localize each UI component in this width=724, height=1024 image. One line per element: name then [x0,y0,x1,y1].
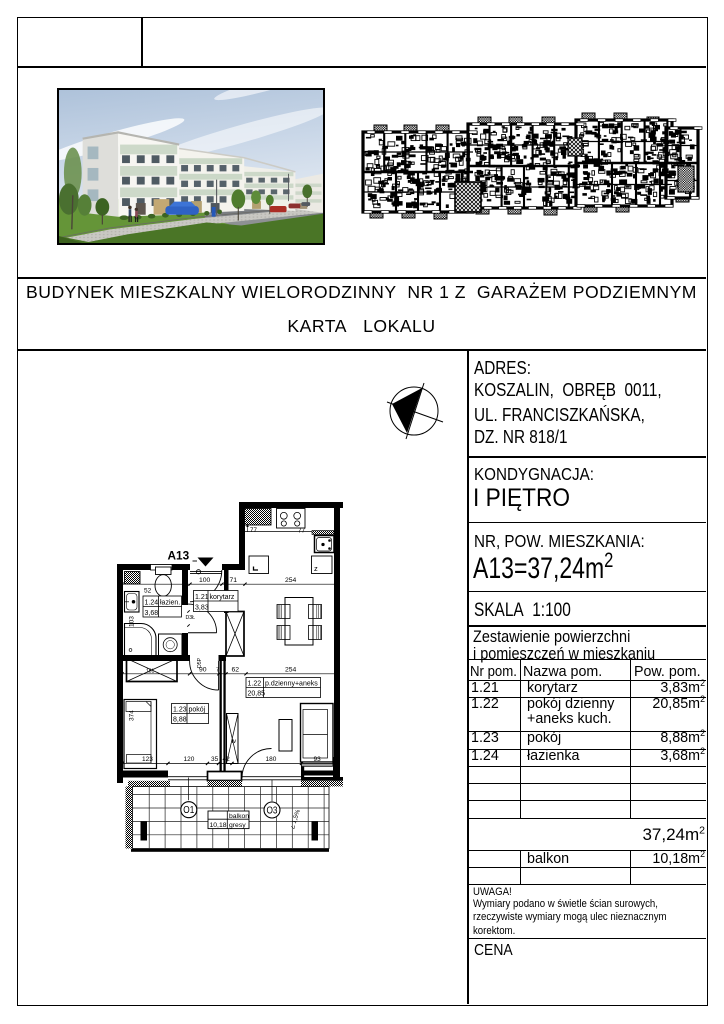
svg-text:p.dzienny+aneks: p.dzienny+aneks [265,680,318,687]
svg-text:77: 77 [298,528,305,535]
svg-text:1.24: 1.24 [145,599,159,606]
svg-text:A13: A13 [168,549,190,563]
svg-text:180: 180 [266,756,277,763]
svg-text:1.21: 1.21 [195,594,209,601]
svg-text:pokój: pokój [189,706,206,713]
svg-text:z: z [314,564,318,573]
svg-text:374: 374 [129,710,136,721]
svg-text:gresy: gresy [229,822,246,829]
svg-text:D5P: D5P [197,657,203,668]
svg-text:62: 62 [232,667,240,674]
svg-text:O1: O1 [183,805,194,816]
svg-text:20,85: 20,85 [248,690,266,697]
svg-text:O3: O3 [267,806,278,817]
svg-text:52: 52 [144,588,152,595]
svg-text:korytarz: korytarz [210,594,235,601]
svg-text:10,18: 10,18 [210,822,227,829]
svg-text:7: 7 [216,668,219,674]
svg-text:3,68: 3,68 [145,610,159,617]
svg-text:8,88: 8,88 [173,716,187,723]
svg-text:254: 254 [285,667,297,674]
svg-text:balkon: balkon [229,813,249,820]
svg-text:123: 123 [142,756,153,763]
svg-text:103: 103 [129,616,136,627]
svg-text:tv: tv [232,739,237,745]
svg-text:93: 93 [314,756,322,763]
svg-text:1.23: 1.23 [173,706,187,713]
svg-text:100: 100 [199,577,211,584]
svg-text:77: 77 [250,527,257,534]
svg-text:1.22: 1.22 [248,680,262,687]
svg-text:71: 71 [230,577,238,584]
svg-text:42: 42 [223,756,231,763]
svg-text:35: 35 [211,756,219,763]
svg-text:łazien.: łazien. [160,599,180,606]
svg-text:D3Ł: D3Ł [186,615,196,621]
svg-text:254: 254 [285,577,297,584]
svg-text:120: 120 [184,756,195,763]
svg-text:3,83: 3,83 [195,604,209,611]
